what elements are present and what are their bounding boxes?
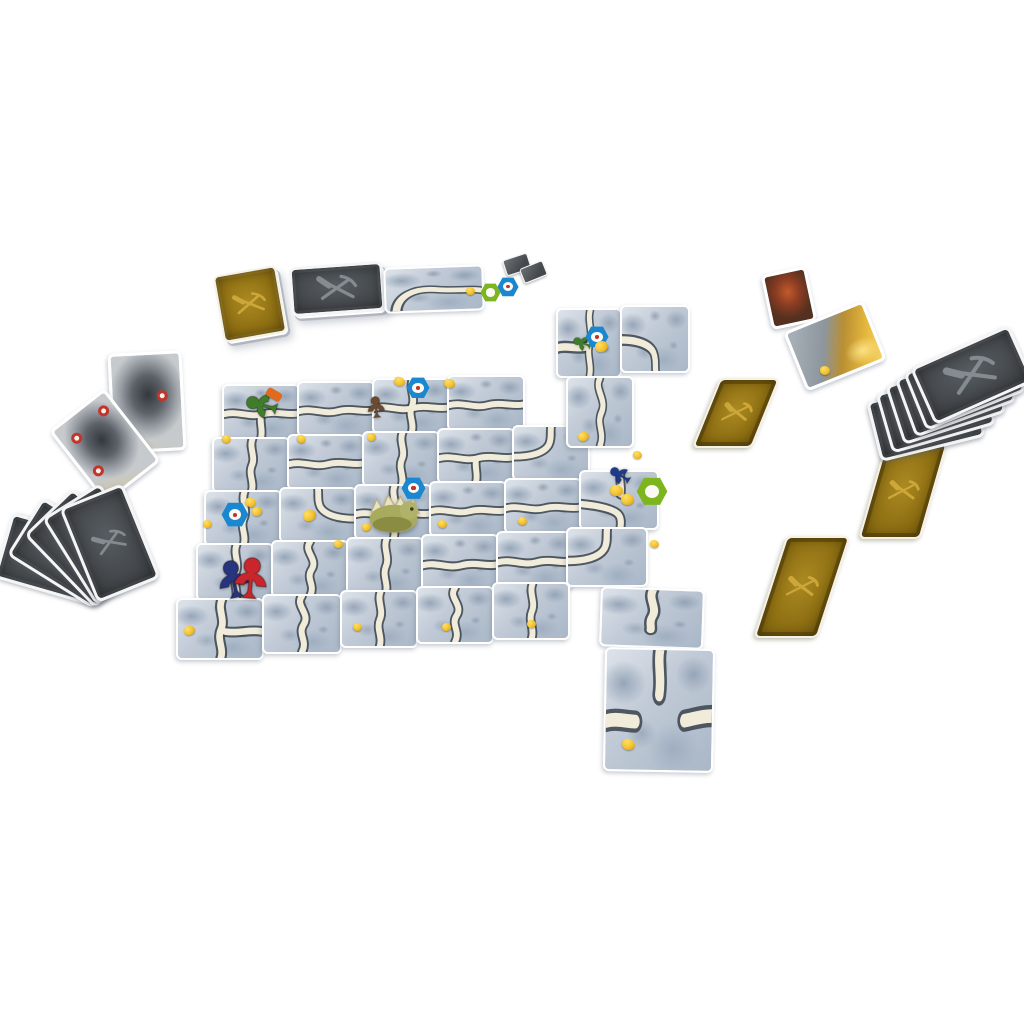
- tunnel-path-art: [605, 649, 713, 771]
- tunnel-card[interactable]: [287, 434, 365, 490]
- tunnel-card[interactable]: [340, 590, 418, 648]
- tunnel-card[interactable]: [504, 478, 582, 534]
- crossed-tools-emblem: [304, 271, 369, 307]
- token-mark: [416, 386, 420, 389]
- gold-nugget[interactable]: [632, 450, 642, 459]
- token-mark: [411, 486, 415, 490]
- tunnel-card[interactable]: [620, 305, 690, 373]
- gold-card[interactable]: [858, 443, 948, 539]
- token-mark: [595, 335, 599, 338]
- tunnel-card[interactable]: [271, 540, 349, 598]
- tunnel-card[interactable]: [429, 481, 507, 537]
- tunnel-path-art: [622, 307, 688, 371]
- tunnel-path-art: [214, 439, 288, 491]
- token-center: [412, 383, 423, 393]
- tunnel-card[interactable]: [603, 647, 715, 773]
- tunnel-path-art: [348, 539, 422, 593]
- game-table: [0, 0, 1024, 1024]
- meeple-shape: [363, 393, 389, 421]
- gold-deck[interactable]: [213, 265, 288, 343]
- tunnel-card[interactable]: [346, 537, 424, 595]
- tunnel-path-art: [264, 596, 340, 652]
- gold-nugget[interactable]: [820, 366, 830, 375]
- tunnel-card[interactable]: [437, 428, 515, 484]
- crossed-tools-emblem: [769, 552, 835, 623]
- gold-nugget[interactable]: [438, 520, 448, 529]
- tunnel-card[interactable]: [421, 534, 499, 592]
- tunnel-card[interactable]: [262, 594, 342, 654]
- crossed-tools-emblem: [706, 389, 766, 437]
- tunnel-card[interactable]: [447, 375, 525, 431]
- token-center: [229, 509, 242, 521]
- tunnel-path-art: [506, 480, 580, 532]
- meeple-red[interactable]: [226, 551, 277, 606]
- tunnel-path-art: [494, 584, 568, 638]
- tunnel-path-art: [299, 383, 373, 435]
- action-card-deck[interactable]: [288, 261, 385, 317]
- token-mark: [506, 285, 510, 288]
- token-blue-ring[interactable]: [497, 277, 519, 297]
- gold-card[interactable]: [753, 536, 850, 638]
- gold-nugget[interactable]: [203, 520, 212, 528]
- gold-nugget[interactable]: [649, 539, 659, 548]
- tunnel-card[interactable]: [212, 437, 290, 493]
- tunnel-card[interactable]: [566, 527, 648, 587]
- tunnel-path-art: [418, 588, 492, 642]
- tunnel-card[interactable]: [599, 586, 705, 650]
- meeple-brown[interactable]: [363, 393, 389, 421]
- tunnel-card[interactable]: [566, 376, 634, 448]
- tunnel-path-art: [364, 433, 438, 485]
- token-center: [408, 483, 420, 493]
- tunnel-path-art: [289, 436, 363, 488]
- forbidden-tool-badge: [69, 430, 84, 445]
- tunnel-card[interactable]: [496, 531, 574, 589]
- forbidden-tool-badge: [96, 403, 111, 418]
- tunnel-path-art: [439, 430, 513, 482]
- gold-card[interactable]: [692, 378, 780, 448]
- gold-nugget[interactable]: [334, 540, 343, 548]
- gold-nugget[interactable]: [518, 517, 528, 526]
- forbidden-tool-badge: [91, 463, 106, 478]
- tunnel-card[interactable]: [492, 582, 570, 640]
- tunnel-path-art: [281, 489, 355, 541]
- token-center: [486, 288, 496, 297]
- token-center: [503, 282, 513, 291]
- tunnel-path-art: [568, 529, 646, 585]
- forbidden-tool-badge: [156, 390, 168, 402]
- character-card-face-up[interactable]: [761, 266, 818, 330]
- crossed-tools-emblem: [225, 278, 276, 331]
- crossed-tools-emblem: [873, 458, 934, 524]
- meeple-shape: [226, 551, 277, 606]
- tunnel-card[interactable]: [279, 487, 357, 543]
- tunnel-path-art: [423, 536, 497, 590]
- tunnel-path-art: [498, 533, 572, 587]
- tunnel-path-art: [342, 592, 416, 646]
- tunnel-path-art: [601, 588, 703, 647]
- token-mark: [233, 513, 238, 517]
- gold-nugget[interactable]: [466, 287, 475, 295]
- tunnel-card[interactable]: [416, 586, 494, 644]
- tunnel-path-art: [273, 542, 347, 596]
- crossed-tools-emblem: [76, 503, 143, 584]
- tunnel-path-art: [449, 377, 523, 429]
- token-center: [645, 485, 660, 498]
